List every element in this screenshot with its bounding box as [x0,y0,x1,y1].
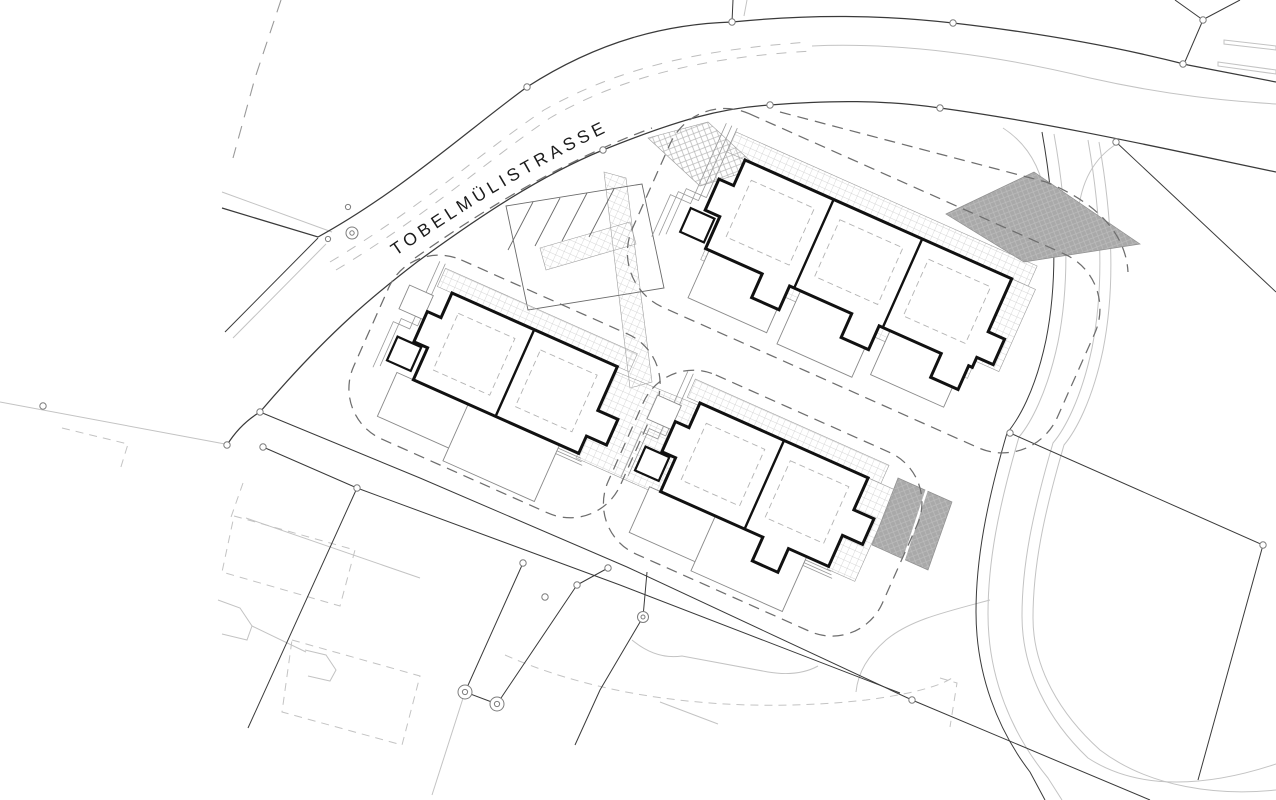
site-plan-page: TOBELMÜLISTRASSE [0,0,1276,800]
survey-points [40,17,1266,711]
parcel-dashed-line-top-left [233,0,281,158]
building-west [350,254,647,519]
site-plan-drawing: TOBELMÜLISTRASSE [0,0,1276,800]
